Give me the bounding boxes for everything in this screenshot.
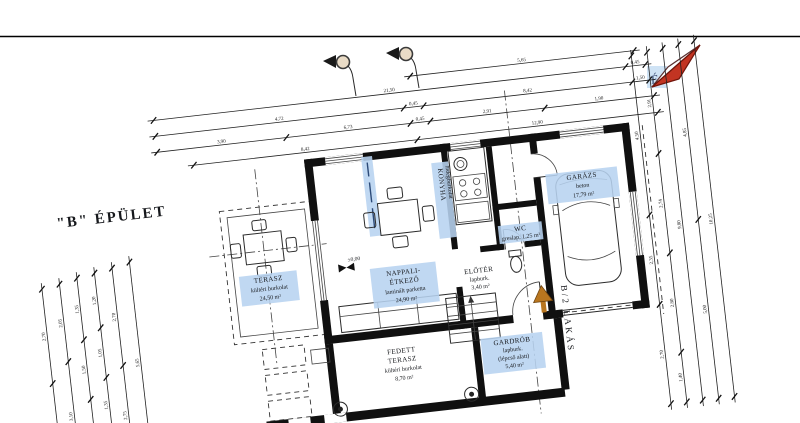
dimension-value: 2,70 xyxy=(660,349,666,359)
dimension-value: 1,05 xyxy=(98,348,104,358)
room-label-nappali: NAPPALI- ÉTKEZŐ laminált parketta 24,90 … xyxy=(370,261,440,308)
dimension-line xyxy=(188,112,664,166)
dimension-value: 1,90 xyxy=(594,96,604,102)
dimension-value: 0,45 xyxy=(409,101,419,107)
dimension-value: 2,91 xyxy=(483,109,493,115)
building-title: "B" ÉPÜLET xyxy=(56,203,168,232)
dimension-line xyxy=(662,42,703,406)
window-dimension-tag xyxy=(361,156,381,237)
axis-line xyxy=(209,243,328,257)
dimension-value: 2,91 xyxy=(647,98,653,108)
dimension-line xyxy=(151,95,660,153)
toilet xyxy=(509,250,523,273)
dimension-value: 1,35 xyxy=(75,304,81,314)
dimension-value: 6,73 xyxy=(344,125,354,131)
terrace-outline xyxy=(219,201,326,345)
dimension-value: 1,20 xyxy=(92,296,98,306)
dimension-value: 4,85 xyxy=(683,127,689,137)
room-label-eloter: ELŐTÉR lapburk. 3,40 m² xyxy=(464,265,496,292)
dimension-line xyxy=(41,283,63,423)
dimension-value: 2,05 xyxy=(58,318,64,328)
dimension-line xyxy=(111,262,135,423)
kitchen-counter xyxy=(448,147,492,225)
dimension-value: 0,45 xyxy=(416,117,426,123)
planters xyxy=(262,342,336,421)
dimension-value: 4,50 xyxy=(635,131,641,141)
dimension-value: 1,50 xyxy=(636,76,646,82)
lamp-icon xyxy=(386,47,419,88)
dimension-value: 5,00 xyxy=(703,304,709,314)
rotated-plan-group: "B" ÉPÜLET 5,6521,500,454,720,458,421,50… xyxy=(17,34,738,423)
dimension-line xyxy=(129,256,153,423)
svg-text:kültéri burkolat: kültéri burkolat xyxy=(385,365,423,375)
dimension-value: 2,75 xyxy=(123,410,129,420)
dimension-value: 3,10 xyxy=(69,411,75,421)
dimension-line xyxy=(59,278,82,423)
svg-text:WC: WC xyxy=(514,224,527,233)
dimension-value: 3,90 xyxy=(217,139,227,145)
dimension-value: 2,80 xyxy=(670,298,676,308)
floor-plan-sheet: É "B" ÉPÜLET 5,6521,500,454,720,458,421,… xyxy=(0,0,800,423)
level-marker: ±0,00 xyxy=(337,256,361,273)
level-label: ±0,00 xyxy=(347,256,360,263)
dimension-value: 2,70 xyxy=(112,312,118,322)
garage-door xyxy=(563,302,633,315)
dimension-value: 1,40 xyxy=(678,372,684,382)
dimension-line xyxy=(94,267,117,423)
dimension-value: 4,72 xyxy=(275,117,285,123)
room-label-gardrob: GARDRÓB lapburk. (lépcső alatt) 5,40 m² xyxy=(480,332,546,375)
dimension-value: 5,65 xyxy=(135,358,141,368)
dimension-value: 8,42 xyxy=(523,88,533,94)
dimension-value: 2,74 xyxy=(659,198,665,208)
dimension-value: 2,35 xyxy=(649,255,655,265)
svg-text:lapburk.: lapburk. xyxy=(469,275,490,283)
dimension-value: 8,42 xyxy=(301,147,311,153)
dimension-line xyxy=(404,50,639,77)
dimension-value: 1,35 xyxy=(104,400,110,410)
dimension-value: 5,65 xyxy=(517,58,527,64)
dimension-value: 2,70 xyxy=(42,332,48,342)
svg-text:3,40 m²: 3,40 m² xyxy=(471,283,490,291)
dimension-value: 1,50 xyxy=(82,365,88,375)
floor-plan-drawing: É "B" ÉPÜLET 5,6521,500,454,720,458,421,… xyxy=(0,0,800,423)
dimension-line xyxy=(148,64,652,121)
dimension-line xyxy=(76,272,99,423)
room-label-terasz: TERASZ kültéri burkolat 24,50 m² xyxy=(239,270,300,306)
svg-text:ELŐTÉR: ELŐTÉR xyxy=(464,265,494,276)
dimension-value: 9,80 xyxy=(677,219,683,229)
north-arrow-icon: É xyxy=(647,45,700,88)
svg-text:8,70 m²: 8,70 m² xyxy=(395,375,414,383)
lamp-icon xyxy=(323,55,356,96)
room-label-fedett-terasz: FEDETT TERASZ kültéri burkolat 8,70 m² xyxy=(382,345,423,384)
